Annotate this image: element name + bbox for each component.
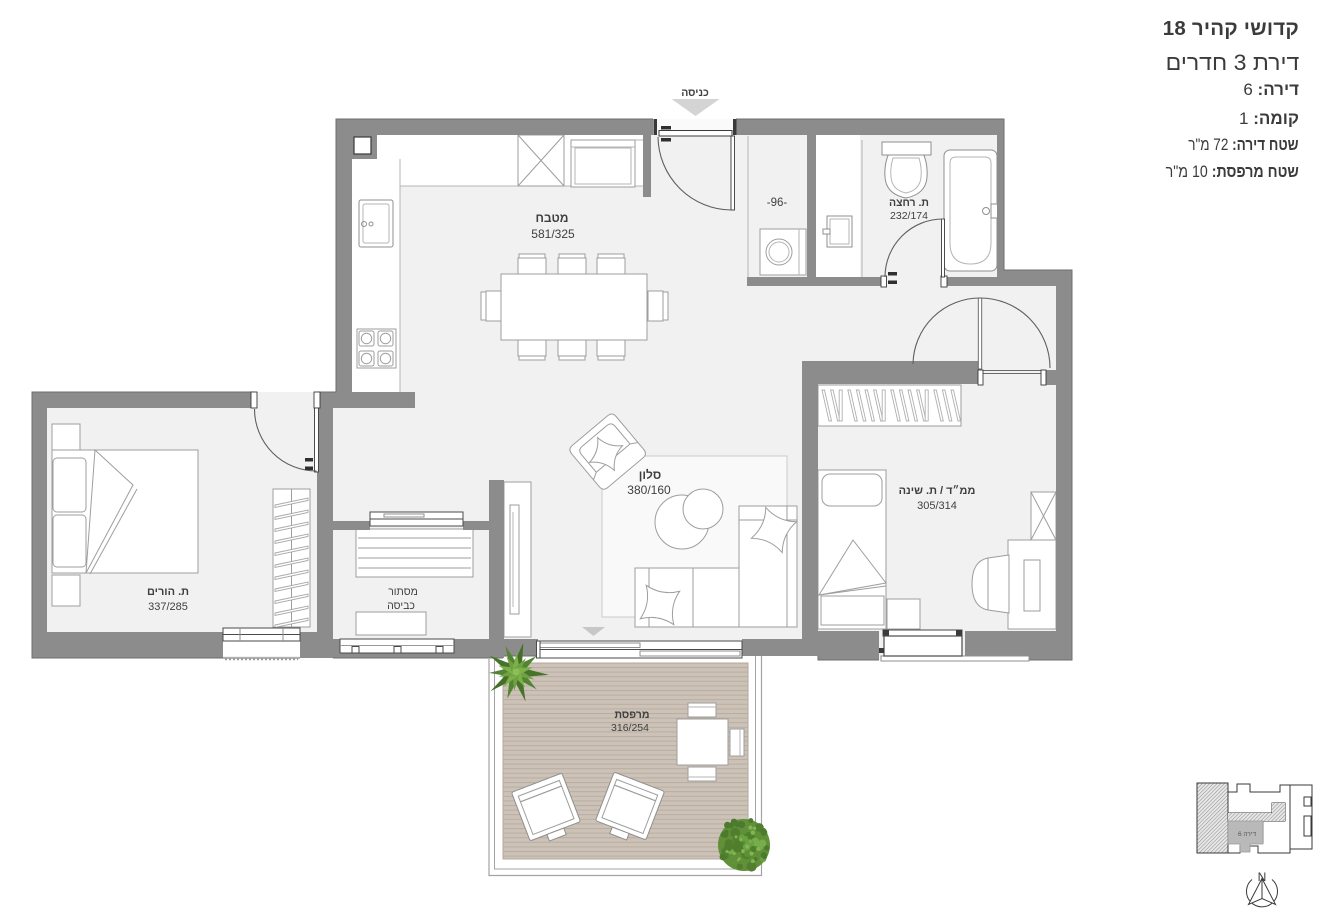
svg-text:-96-: -96- — [767, 197, 788, 209]
svg-text:מסתור: מסתור — [388, 586, 418, 598]
svg-text:דירה 6: דירה 6 — [1238, 831, 1257, 838]
svg-text:כניסה: כניסה — [681, 87, 709, 99]
svg-text:337/285: 337/285 — [148, 601, 188, 613]
svg-text:305/314: 305/314 — [917, 500, 957, 512]
svg-text:מטבח: מטבח — [535, 211, 568, 225]
svg-text:316/254: 316/254 — [611, 722, 649, 734]
svg-text:581/325: 581/325 — [531, 227, 575, 241]
svg-text:מרפסת: מרפסת — [615, 709, 650, 721]
svg-text:ת. רחצה: ת. רחצה — [889, 197, 929, 209]
svg-text:380/160: 380/160 — [627, 483, 671, 497]
svg-text:סלון: סלון — [639, 468, 661, 482]
svg-text:ממ״ד / ת. שינה: ממ״ד / ת. שינה — [899, 484, 976, 497]
svg-text:232/174: 232/174 — [890, 210, 928, 222]
svg-text:ת. הורים: ת. הורים — [147, 586, 189, 598]
svg-text:כביסה: כביסה — [387, 600, 415, 612]
